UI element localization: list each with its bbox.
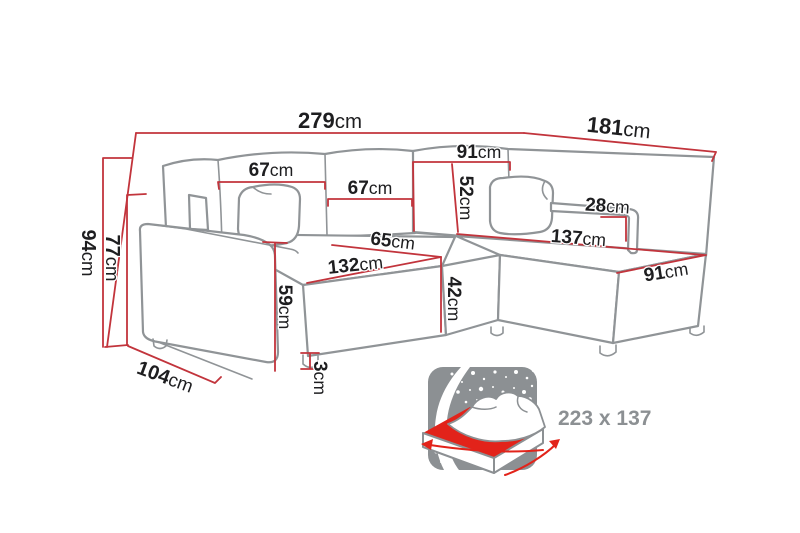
label-secondary-height: 77cm (101, 234, 123, 281)
label-leg-height: 3cm (309, 361, 330, 395)
label-armrest-front-height: 59cm (274, 285, 295, 330)
sofa-leg-4 (600, 345, 616, 356)
dimension-diagram: 279cm 181cm 94cm 77cm 104cm 67cm 67cm 91… (0, 0, 800, 533)
label-total-depth: 181cm (586, 112, 652, 144)
label-left-back-cushion: 67cm (249, 160, 294, 181)
armrest-left-back-sliver (189, 195, 208, 230)
label-right-back-cushion: 67cm (348, 178, 393, 199)
label-right-armrest-height: 28cm (584, 194, 630, 218)
sofa-dimension-drawing: 279cm 181cm 94cm 77cm 104cm 67cm 67cm 91… (0, 0, 800, 533)
label-seat-height: 42cm (443, 277, 464, 322)
sofa-bed-function-icon: 223 x 137 (421, 367, 651, 475)
label-backrest-height: 52cm (455, 176, 476, 221)
label-total-width: 279cm (298, 108, 362, 133)
sofa-leg-3 (491, 327, 503, 336)
arrow-head-right (549, 439, 560, 449)
sleeping-area-label: 223 x 137 (558, 407, 651, 430)
label-total-height: 94cm (77, 229, 99, 276)
armrest-left (140, 224, 278, 362)
label-side-depth: 104cm (134, 357, 196, 398)
label-chaise-length: 137cm (550, 226, 607, 251)
label-back-section-width: 91cm (457, 142, 502, 163)
sofa-outline (140, 146, 714, 379)
